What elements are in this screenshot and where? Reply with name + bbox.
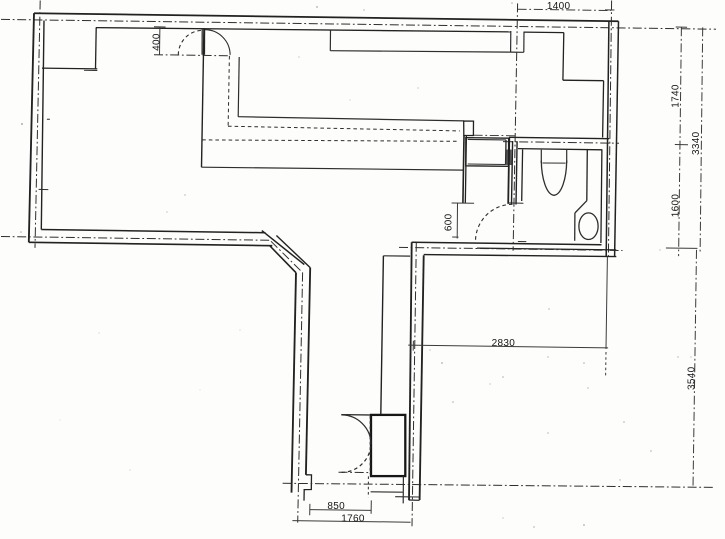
svg-text:3340: 3340 xyxy=(691,131,702,155)
svg-text:3540: 3540 xyxy=(687,366,698,390)
svg-text:1760: 1760 xyxy=(341,513,365,524)
svg-text:400: 400 xyxy=(151,33,162,51)
svg-text:1600: 1600 xyxy=(671,194,682,218)
svg-text:1740: 1740 xyxy=(671,84,682,108)
svg-text:850: 850 xyxy=(327,501,345,512)
svg-text:600: 600 xyxy=(443,213,454,231)
svg-text:2830: 2830 xyxy=(492,338,516,349)
svg-text:1400: 1400 xyxy=(547,1,571,12)
